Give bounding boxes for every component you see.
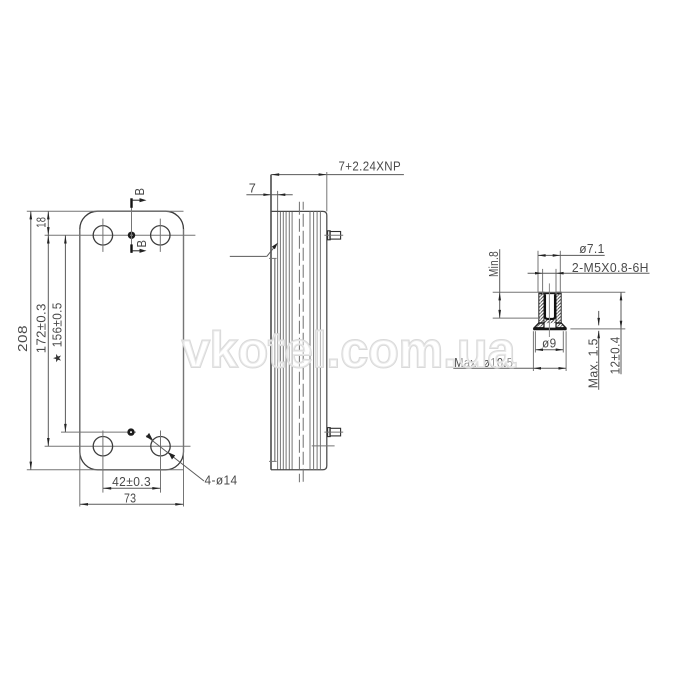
svg-text:42±0.3: 42±0.3 xyxy=(112,475,151,489)
svg-text:73: 73 xyxy=(124,492,137,506)
svg-text:7+2.24XNP: 7+2.24XNP xyxy=(339,160,402,174)
svg-text:156±0.5: 156±0.5 xyxy=(51,302,65,347)
svg-text:18: 18 xyxy=(35,217,49,228)
svg-text:Max. 1.5: Max. 1.5 xyxy=(586,338,600,388)
svg-text:Min.8: Min.8 xyxy=(487,251,501,277)
svg-text:2-M5X0.8-6H: 2-M5X0.8-6H xyxy=(572,261,649,275)
svg-text:vkotel.com.ua: vkotel.com.ua xyxy=(182,322,517,378)
svg-text:B: B xyxy=(132,188,147,196)
svg-text:B: B xyxy=(134,240,149,248)
svg-text:7: 7 xyxy=(249,182,256,196)
svg-text:208: 208 xyxy=(16,325,30,352)
svg-text:ø9: ø9 xyxy=(542,336,557,350)
svg-text:ø7.1: ø7.1 xyxy=(579,242,605,256)
svg-text:172±0.3: 172±0.3 xyxy=(34,303,48,353)
svg-text:4-ø14: 4-ø14 xyxy=(205,473,238,487)
svg-text:12±0.4: 12±0.4 xyxy=(609,336,623,374)
svg-text:★: ★ xyxy=(52,353,64,363)
